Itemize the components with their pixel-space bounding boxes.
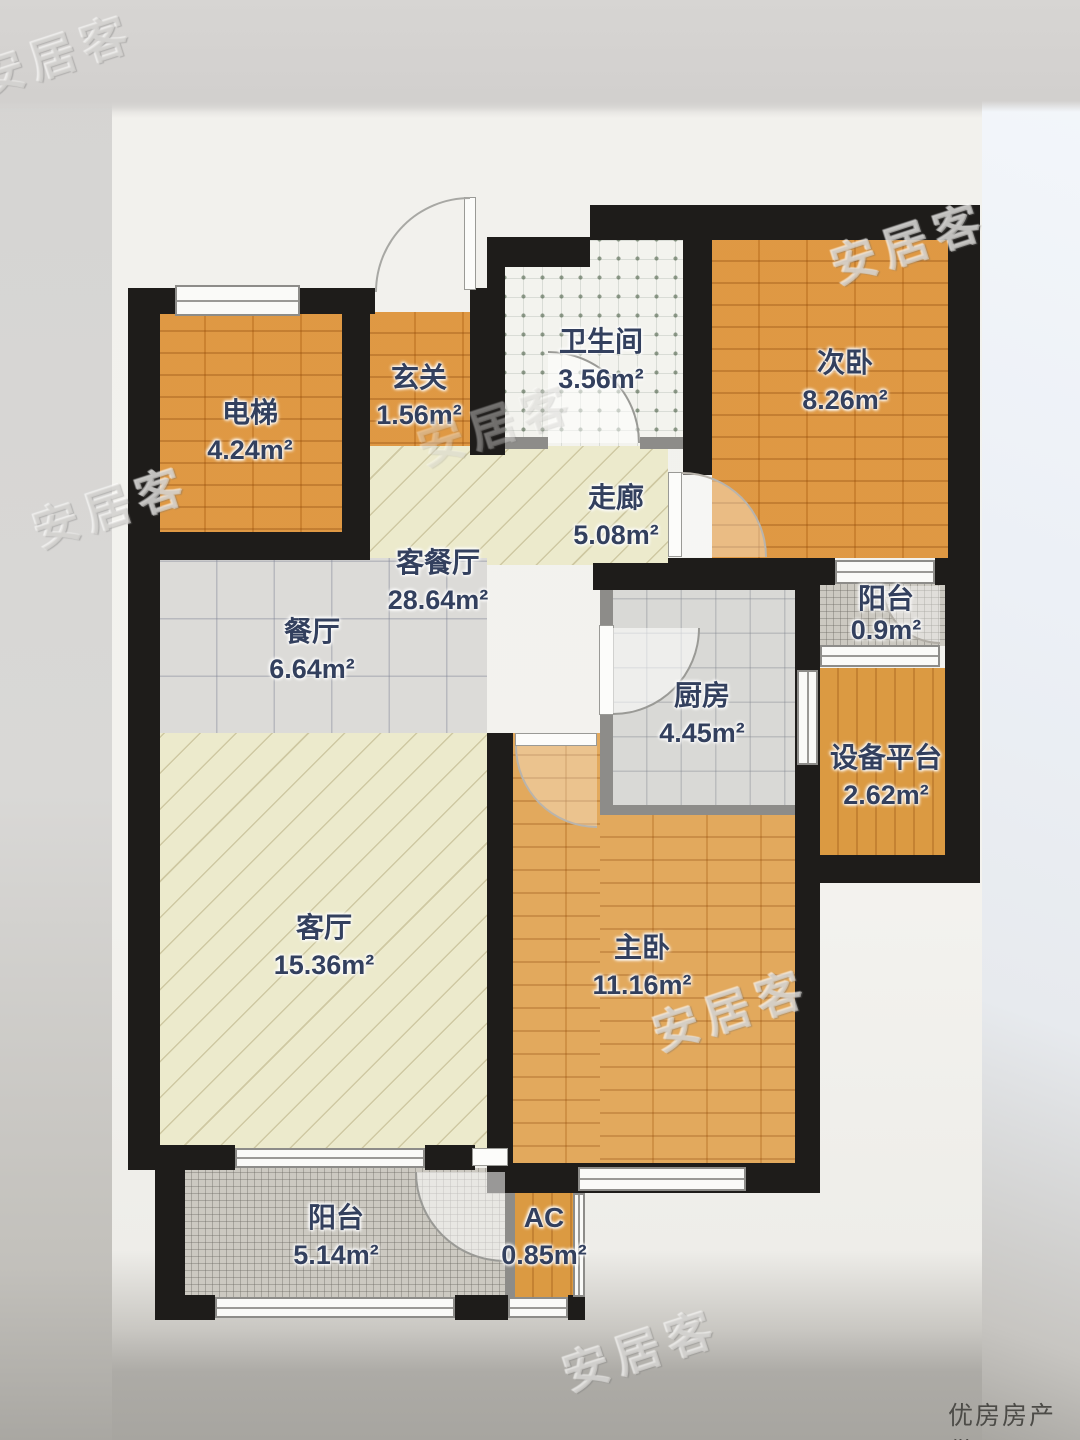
- room-name: 阳台: [308, 1198, 364, 1237]
- room-label-dining: 餐厅 6.64m²: [269, 612, 355, 689]
- bedroom2-door-leaf: [668, 472, 682, 557]
- room-area: 5.14m²: [293, 1237, 379, 1275]
- room-name: 餐厅: [284, 612, 340, 651]
- room-label-balcony-south: 阳台 5.14m²: [293, 1198, 379, 1275]
- credit-text: 优房房产供图: [948, 1396, 1080, 1440]
- room-area: 28.64m²: [388, 582, 489, 620]
- room-name: 阳台: [858, 583, 914, 615]
- room-area: 5.08m²: [573, 517, 659, 555]
- room-name: 厨房: [674, 676, 730, 715]
- window-elevator-north: [175, 285, 300, 316]
- wall-equipment-east: [945, 558, 980, 863]
- room-name: 电梯: [222, 393, 278, 432]
- master-door-leaf: [515, 733, 597, 746]
- room-area: 2.62m²: [843, 777, 929, 815]
- room-name: 客厅: [296, 908, 352, 947]
- room-area: 4.24m²: [207, 432, 293, 470]
- room-name: 走廊: [588, 478, 644, 517]
- room-label-living-dining: 客餐厅 28.64m²: [388, 543, 489, 620]
- partition-kitchen-south: [600, 805, 797, 815]
- wall-kitchen-north: [593, 563, 820, 590]
- room-label-kitchen: 厨房 4.45m²: [659, 676, 745, 753]
- partition-bathroom-south-right: [640, 437, 685, 449]
- window-balcony-equipment: [820, 645, 940, 667]
- window-kitchen-east: [797, 670, 818, 765]
- partition-kitchen-west-lower: [600, 715, 613, 807]
- window-balcony-south: [215, 1297, 455, 1318]
- room-area: 0.85m²: [501, 1237, 587, 1275]
- room-name: 卫生间: [559, 322, 643, 361]
- room-name: 次卧: [817, 343, 873, 382]
- background-top-band: [0, 0, 1080, 112]
- room-area: 11.16m²: [592, 967, 691, 1005]
- room-label-elevator: 电梯 4.24m²: [207, 393, 293, 470]
- room-area: 0.9m²: [851, 615, 922, 646]
- wall-elevator-south: [128, 532, 370, 560]
- wall-living-balcony-a: [155, 1145, 235, 1170]
- wall-north-right: [590, 205, 980, 240]
- balcony-door-leaf: [472, 1148, 508, 1166]
- room-label-hallway: 玄关 1.56m²: [376, 358, 462, 435]
- wall-master-west: [487, 733, 513, 1193]
- background-right-band: [982, 0, 1080, 1440]
- room-name: 主卧: [614, 928, 670, 967]
- wall-bathroom-west: [487, 237, 505, 449]
- room-label-ac: AC 0.85m²: [501, 1198, 587, 1275]
- background-left-band: [0, 0, 112, 1440]
- window-living-balcony: [235, 1148, 425, 1168]
- room-name: 玄关: [391, 358, 447, 397]
- wall-living-balcony-b: [425, 1145, 475, 1170]
- room-label-bedroom-second: 次卧 8.26m²: [802, 343, 888, 420]
- room-label-balcony-north: 阳台 0.9m²: [851, 583, 922, 646]
- floorplan-photo: 电梯 4.24m² 玄关 1.56m² 卫生间 3.56m² 次卧 8.26m²…: [0, 0, 1080, 1440]
- room-name: 客餐厅: [396, 543, 480, 582]
- room-label-corridor: 走廊 5.08m²: [573, 478, 659, 555]
- wall-south-c: [568, 1295, 585, 1320]
- kitchen-door-leaf: [599, 625, 614, 715]
- window-bedroom2-balcony: [835, 560, 935, 584]
- room-name: 设备平台: [830, 738, 942, 777]
- wall-bath-bedroom2: [683, 240, 712, 475]
- room-area: 8.26m²: [802, 382, 888, 420]
- wall-south-a: [155, 1295, 215, 1320]
- wall-balcony-west: [155, 1145, 185, 1320]
- wall-west-outer: [128, 288, 160, 1170]
- wall-equipment-south: [795, 855, 980, 883]
- entry-door-arc: [375, 197, 470, 292]
- wall-elevator-hallway: [342, 312, 370, 560]
- room-label-equipment: 设备平台 2.62m²: [830, 738, 942, 815]
- partition-bathroom-south-left: [505, 437, 548, 449]
- room-label-living: 客厅 15.36m²: [274, 908, 375, 985]
- room-area: 15.36m²: [274, 947, 375, 985]
- window-ac-south: [508, 1297, 568, 1318]
- room-area: 4.45m²: [659, 715, 745, 753]
- window-master-south: [578, 1167, 746, 1191]
- room-name: AC: [524, 1198, 564, 1237]
- room-area: 1.56m²: [376, 397, 462, 435]
- room-area: 3.56m²: [558, 361, 644, 399]
- wall-south-b: [455, 1295, 508, 1320]
- room-label-bathroom: 卫生间 3.56m²: [558, 322, 644, 399]
- room-label-bedroom-master: 主卧 11.16m²: [592, 928, 691, 1005]
- wall-bedroom2-east: [948, 205, 980, 570]
- room-area: 6.64m²: [269, 651, 355, 689]
